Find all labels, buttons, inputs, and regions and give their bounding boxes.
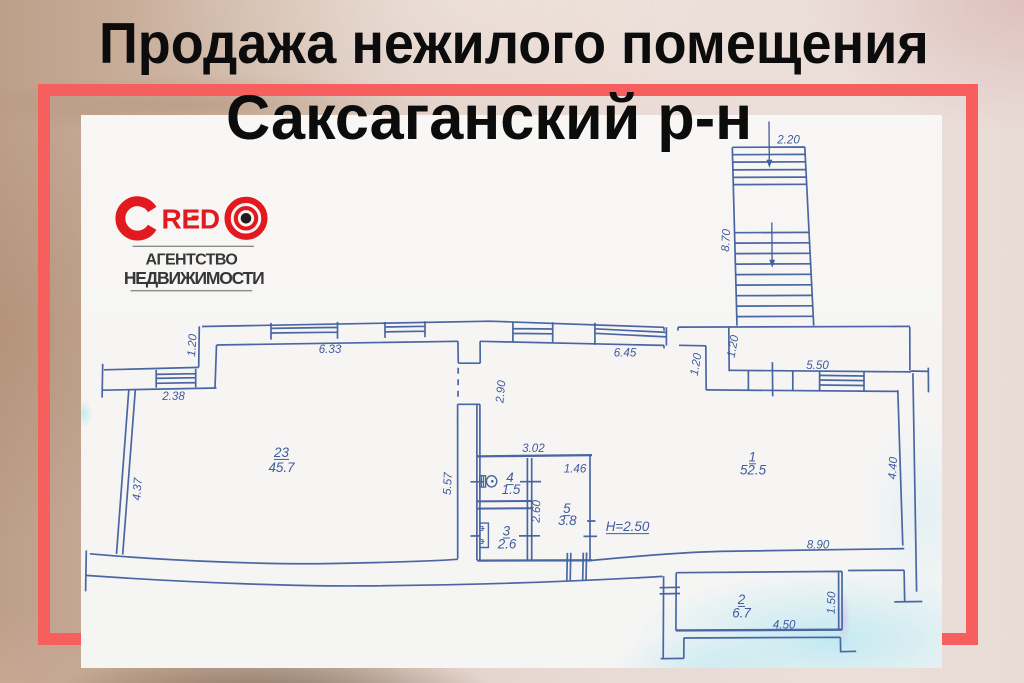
svg-text:6.33: 6.33 [319,343,342,356]
svg-text:8.90: 8.90 [807,539,830,552]
svg-text:52.5: 52.5 [740,462,767,477]
svg-text:НЕДВИЖИМОСТИ: НЕДВИЖИМОСТИ [124,268,264,288]
svg-text:3.02: 3.02 [522,442,545,455]
svg-text:2.20: 2.20 [776,134,800,147]
svg-text:2.6: 2.6 [497,536,517,551]
svg-text:6.7: 6.7 [732,606,751,621]
svg-text:4.40: 4.40 [886,456,900,480]
svg-text:4.37: 4.37 [130,477,145,501]
svg-text:2.90: 2.90 [493,379,508,404]
svg-text:1.5: 1.5 [502,482,521,497]
svg-text:1.46: 1.46 [564,463,587,476]
svg-text:4.50: 4.50 [773,619,796,632]
svg-text:5.50: 5.50 [806,359,829,372]
svg-text:5.57: 5.57 [441,471,455,495]
svg-text:1.20: 1.20 [185,333,200,357]
svg-text:23: 23 [273,445,289,460]
svg-text:АГЕНТСТВО: АГЕНТСТВО [146,252,238,269]
svg-text:2.38: 2.38 [161,390,185,403]
svg-text:H=2.50: H=2.50 [606,519,650,534]
svg-text:1.20: 1.20 [725,334,742,359]
svg-text:8.70: 8.70 [719,228,733,252]
svg-text:6.45: 6.45 [614,347,637,360]
svg-text:RED: RED [162,204,220,235]
svg-text:1.50: 1.50 [825,591,839,615]
svg-text:45.7: 45.7 [268,460,295,475]
svg-text:1.20: 1.20 [688,352,705,377]
svg-text:2.60: 2.60 [530,499,544,524]
